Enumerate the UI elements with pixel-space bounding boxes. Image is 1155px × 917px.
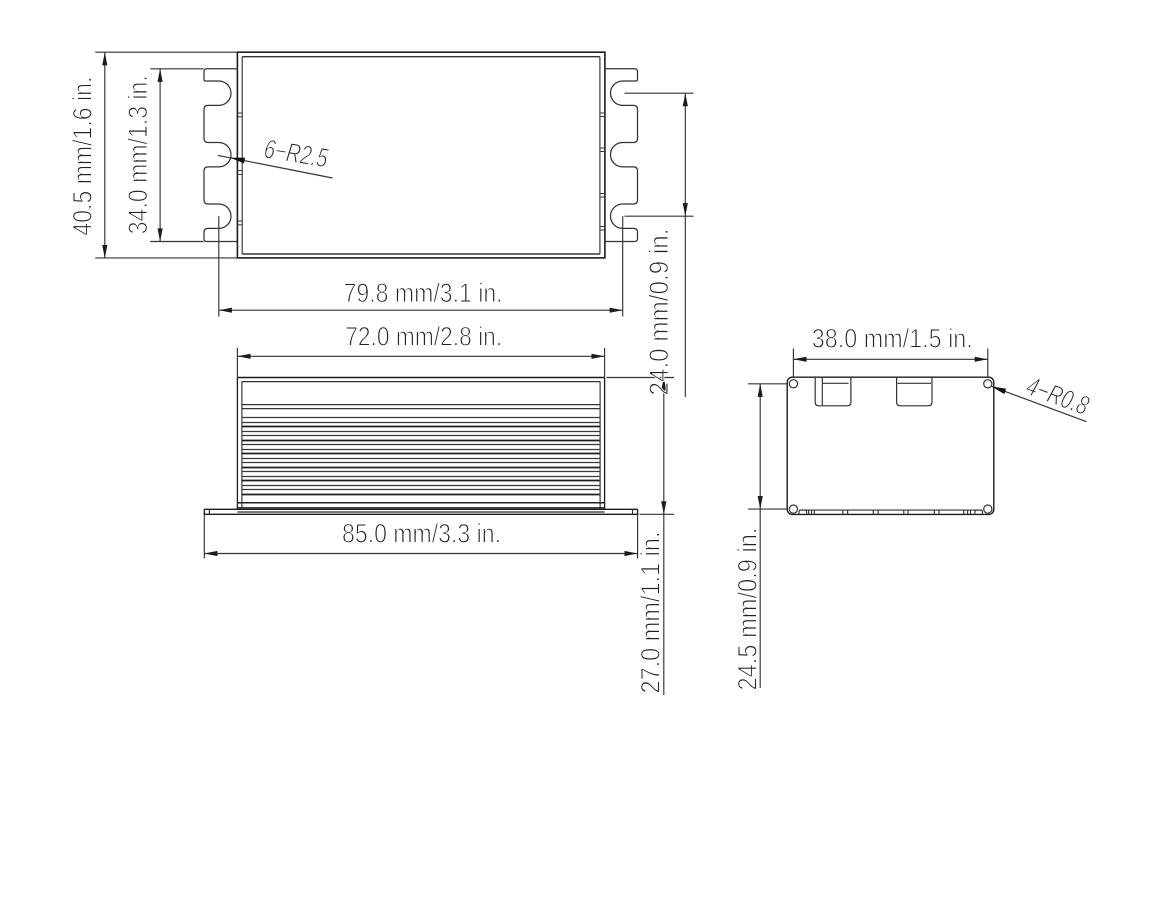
svg-text:34.0 mm/1.3 in.: 34.0 mm/1.3 in.	[123, 75, 153, 234]
svg-text:24.5 mm/0.9 in.: 24.5 mm/0.9 in.	[733, 528, 763, 691]
svg-text:79.8 mm/3.1 in.: 79.8 mm/3.1 in.	[344, 278, 503, 308]
svg-text:85.0 mm/3.3 in.: 85.0 mm/3.3 in.	[342, 518, 501, 548]
svg-text:24.0 mm/0.9 in.: 24.0 mm/0.9 in.	[644, 229, 674, 396]
svg-text:38.0 mm/1.5 in.: 38.0 mm/1.5 in.	[812, 323, 973, 353]
svg-text:27.0 mm/1.1 in.: 27.0 mm/1.1 in.	[636, 532, 666, 694]
svg-text:72.0 mm/2.8 in.: 72.0 mm/2.8 in.	[345, 321, 502, 351]
svg-text:40.5 mm/1.6 in.: 40.5 mm/1.6 in.	[68, 77, 98, 236]
